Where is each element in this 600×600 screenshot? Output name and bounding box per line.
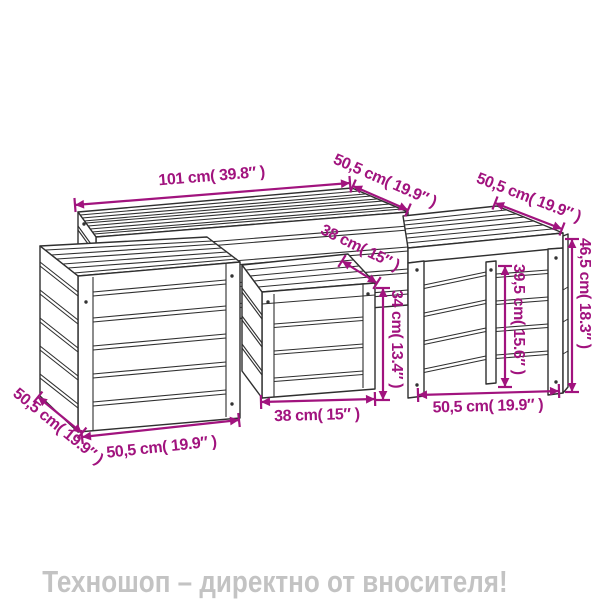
- store-watermark-text: Техношоп – директно от вносителя!: [42, 564, 487, 600]
- product-diagram-page: 101 cm( 39.8″ ) 50,5 cm( 19.9″ ) 50,5 cm…: [0, 0, 600, 600]
- dim-line-table-width: [418, 391, 559, 395]
- small-storage-box-drawing: [242, 254, 375, 398]
- dimension-diagram-canvas: 101 cm( 39.8″ ) 50,5 cm( 19.9″ ) 50,5 cm…: [0, 0, 600, 600]
- label-table-clearance: 39,5 cm( 15.6″ ): [510, 264, 527, 375]
- label-left-box-width: 50,5 cm( 19.9″ ): [106, 433, 218, 461]
- label-table-width: 50,5 cm( 19.9″ ): [432, 396, 543, 416]
- label-bench-length: 101 cm( 39.8″ ): [158, 164, 266, 190]
- label-table-height: 46,5 cm( 18.3″ ): [576, 238, 593, 349]
- dim-line-small-box-width: [261, 399, 375, 402]
- label-small-box-height: 34 cm( 13.4″ ): [388, 290, 405, 388]
- left-storage-box-drawing: [40, 237, 240, 432]
- label-small-box-width: 38 cm( 15″ ): [274, 406, 360, 425]
- side-table-drawing: [403, 206, 568, 398]
